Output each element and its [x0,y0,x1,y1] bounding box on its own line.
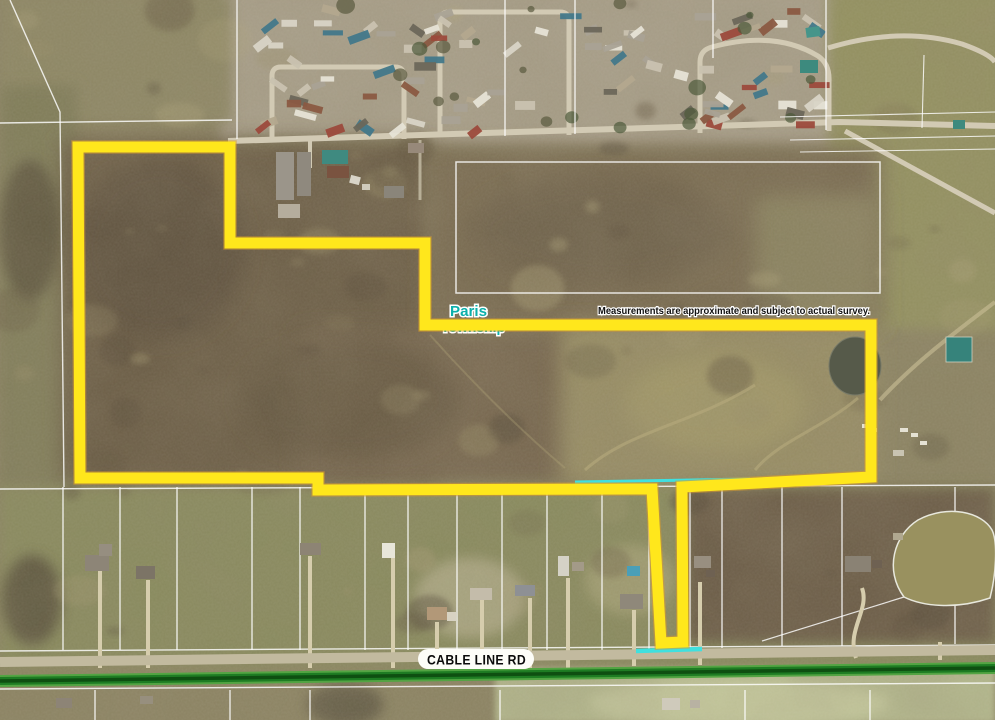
house [442,116,461,124]
house [363,94,377,100]
tree [682,118,695,130]
road-label: CABLE LINE RD [427,652,526,668]
tree [688,80,706,96]
house [703,101,724,107]
tree [541,116,553,126]
house [796,121,815,128]
tree [436,40,451,53]
house [459,40,472,48]
tree [519,67,526,74]
house [404,77,424,84]
house [585,43,602,50]
tree [785,113,796,123]
house [414,62,436,71]
pool [627,566,640,576]
tree [412,42,428,56]
tree [528,6,535,12]
tree [806,75,816,84]
house [377,31,396,36]
house [487,90,504,96]
house [314,20,332,26]
tree [472,38,480,45]
tree [450,92,459,101]
house [323,30,343,35]
house [515,101,535,110]
house [431,35,447,40]
map-canvas[interactable]: Township Paris Measurements are approxim… [0,0,995,720]
house [787,8,800,15]
house [699,66,714,74]
house [281,20,297,27]
tree [565,111,578,123]
house [560,13,581,19]
tree [738,22,752,35]
house [584,27,602,33]
house [771,66,793,73]
disclaimer-label: Measurements are approximate and subject… [598,305,870,317]
aerial-map: Township Paris Measurements are approxim… [0,0,995,720]
township-label-line1: Paris [450,304,487,320]
house [321,76,335,81]
house [604,89,617,95]
road-label-group: CABLE LINE RD [418,649,534,669]
tree [746,12,753,19]
house [268,42,283,48]
tree [393,68,407,81]
house [454,104,468,112]
tree [614,122,627,134]
house [742,85,757,90]
house [287,100,301,108]
tree [433,96,444,106]
